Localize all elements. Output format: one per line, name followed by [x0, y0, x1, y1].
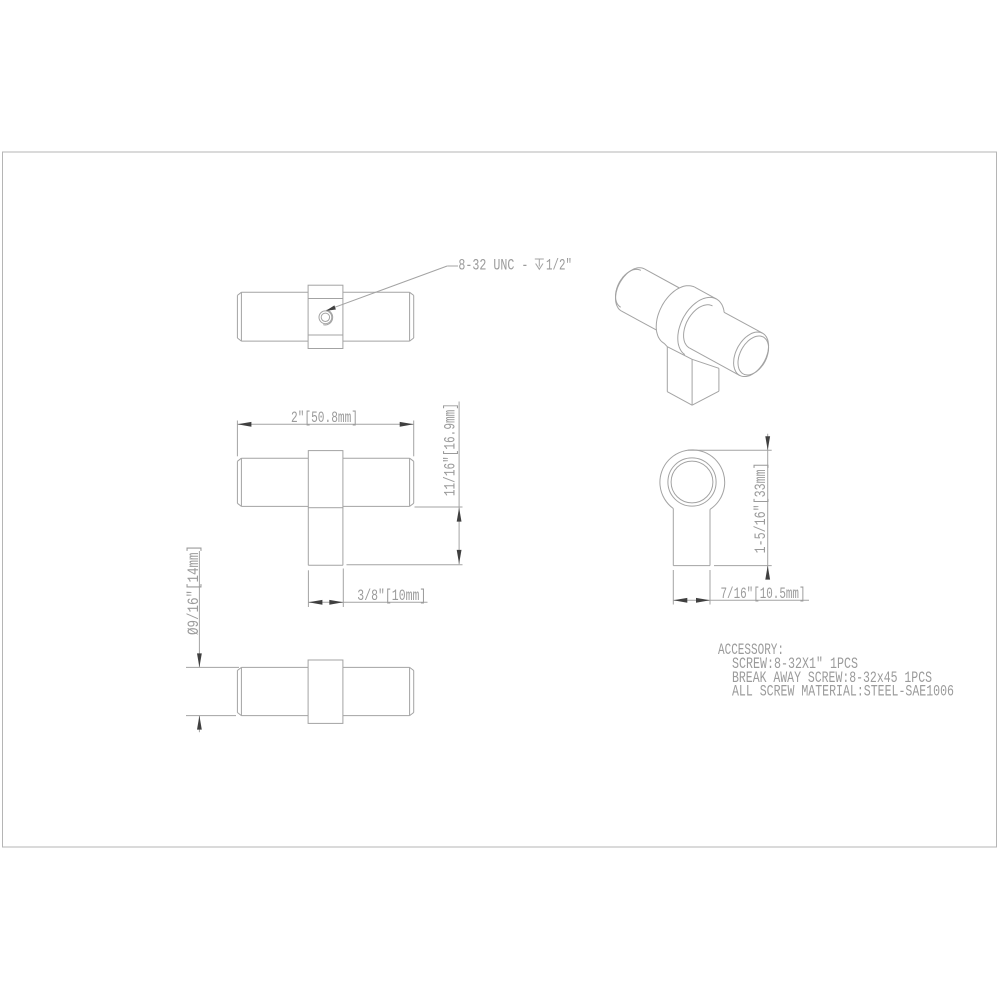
svg-text:2"[50.8mm]: 2"[50.8mm] — [291, 409, 358, 427]
svg-text:ALL SCREW MATERIAL:STEEL-SAE10: ALL SCREW MATERIAL:STEEL-SAE1006 — [732, 683, 954, 701]
svg-text:11/16"[16.9mm]: 11/16"[16.9mm] — [442, 403, 460, 496]
svg-text:1/2": 1/2" — [546, 257, 572, 275]
svg-text:3/8"[10mm]: 3/8"[10mm] — [357, 587, 426, 605]
svg-text:7/16"[10.5mm]: 7/16"[10.5mm] — [721, 585, 806, 603]
svg-text:8-32 UNC -: 8-32 UNC - — [458, 257, 528, 275]
svg-text:1-5/16"[33mm]: 1-5/16"[33mm] — [752, 462, 770, 553]
svg-text:Ø9/16"[14mm]: Ø9/16"[14mm] — [185, 545, 203, 635]
